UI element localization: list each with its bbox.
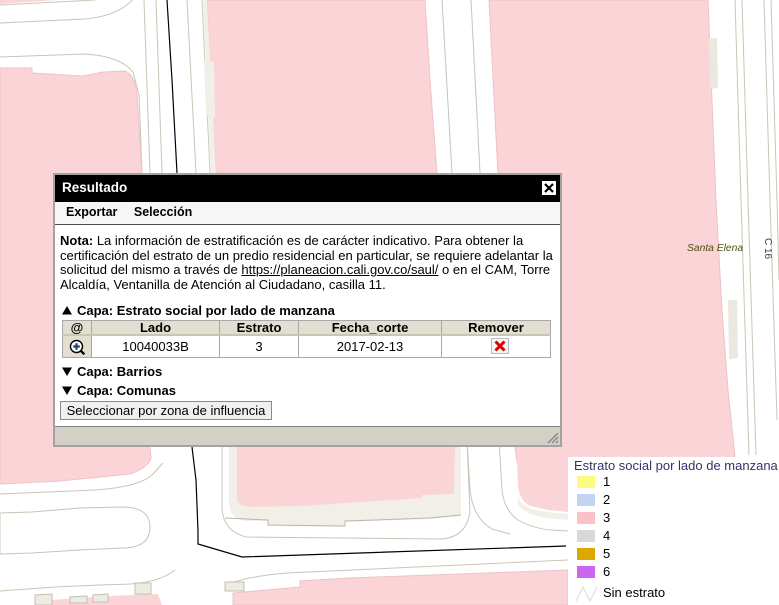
svg-text:C 16: C 16: [762, 238, 773, 260]
svg-text:Santa Elena: Santa Elena: [687, 243, 743, 254]
